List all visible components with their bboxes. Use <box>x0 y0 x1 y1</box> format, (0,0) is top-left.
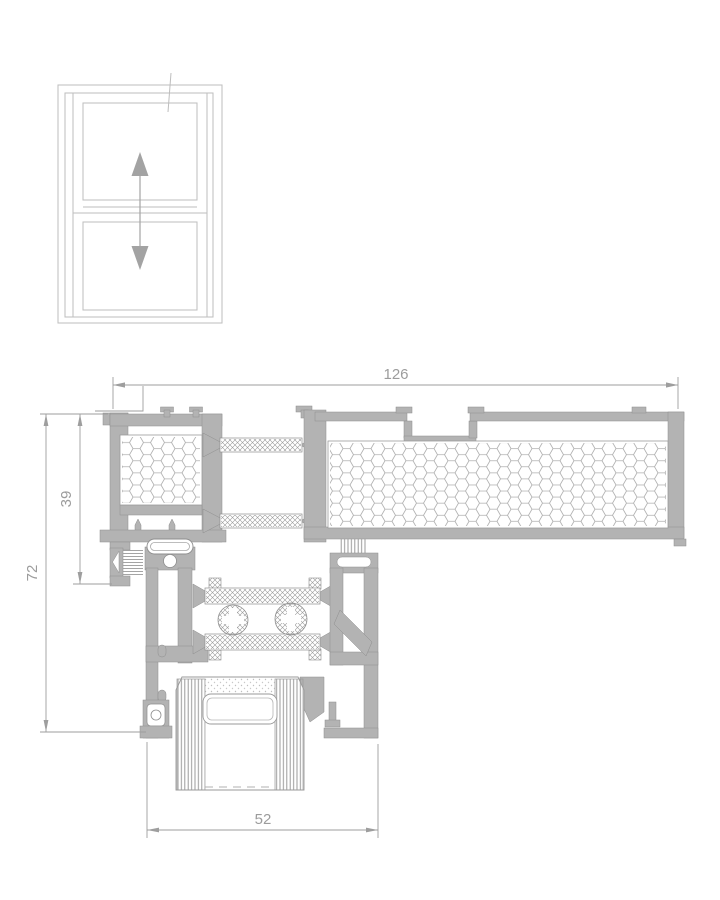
brush-seal-left <box>110 542 143 586</box>
section-drawing-svg: 126 72 39 52 <box>0 0 720 900</box>
schematic-frame-inner <box>65 93 213 317</box>
dimension-label-total-width: 126 <box>383 366 408 383</box>
up-arrow-icon <box>132 152 149 213</box>
dimension-inner-height: 39 <box>58 414 112 584</box>
gasket-bulb-right <box>275 603 307 635</box>
dimension-label-sash-width: 52 <box>255 811 272 828</box>
roller-axle-window <box>203 694 277 724</box>
dimension-total-width: 126 <box>95 366 678 411</box>
roller-groove-left <box>177 679 205 790</box>
thermal-break-lower <box>193 578 334 660</box>
slide-direction-arrows <box>132 152 149 270</box>
roller-assembly <box>176 677 304 790</box>
dimension-label-inner-height: 39 <box>58 491 75 508</box>
drawing-canvas: 126 72 39 52 <box>0 0 720 900</box>
dimension-label-total-height: 72 <box>24 565 41 582</box>
insulation-fill-large <box>328 441 668 528</box>
profile-section <box>100 406 686 790</box>
insulation-fill-small <box>120 435 202 505</box>
gasket-bulb-left <box>218 605 248 635</box>
roller-groove-right <box>275 679 303 790</box>
